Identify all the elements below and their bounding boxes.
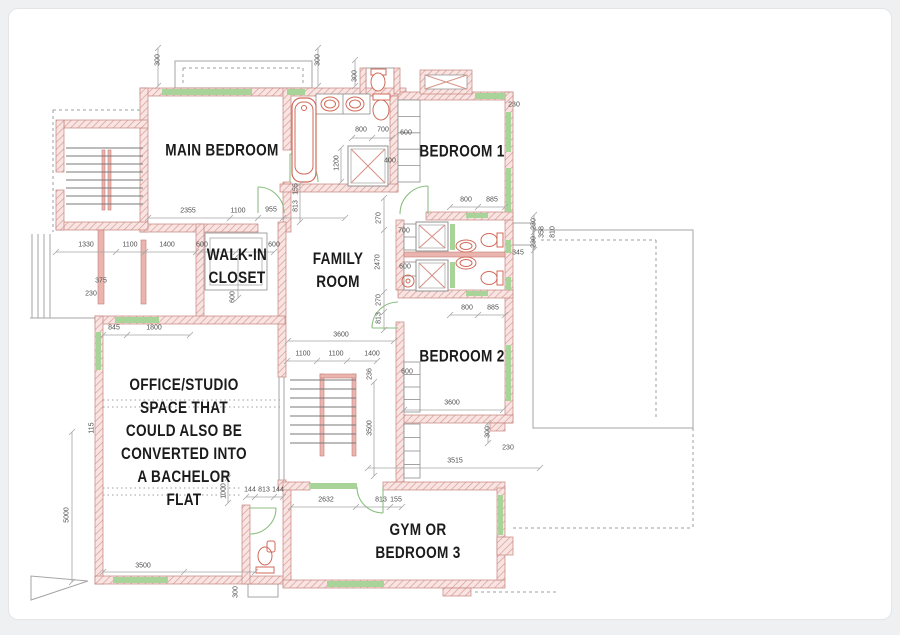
dim-label: 300 xyxy=(485,426,492,438)
dim-label: 144 xyxy=(244,487,256,494)
dim-label: 144 xyxy=(272,487,284,494)
dim-label: 1100 xyxy=(295,351,310,358)
dim-label: 800 xyxy=(460,197,472,204)
window-segment xyxy=(498,495,503,535)
wall-segment xyxy=(283,88,291,150)
dim-label: 3515 xyxy=(447,458,463,465)
dim-label: 700 xyxy=(377,127,389,134)
dim-label: 600 xyxy=(196,242,208,249)
wall-segment xyxy=(398,290,513,298)
wall-segment xyxy=(394,68,400,94)
wall-segment xyxy=(360,68,366,94)
dim-label: 3600 xyxy=(333,332,349,339)
toilet-icon xyxy=(497,233,503,247)
room-label-line: FAMILY xyxy=(313,247,364,270)
dim-label: 230 xyxy=(531,236,538,248)
sink-icon xyxy=(460,243,472,250)
floor-plan: MAIN BEDROOMBEDROOM 1WALK-INCLOSETFAMILY… xyxy=(0,0,900,635)
window-segment xyxy=(506,277,511,290)
dim-label: 230 xyxy=(502,445,514,452)
accent-wall xyxy=(404,252,505,257)
dim-label: 2632 xyxy=(318,497,334,504)
window-segment xyxy=(466,213,488,218)
wall-segment xyxy=(56,190,64,230)
accent-wall xyxy=(98,230,104,304)
room-label-line: MAIN BEDROOM xyxy=(165,139,278,162)
accent-wall xyxy=(141,240,146,304)
dim-label: 800 xyxy=(461,305,473,312)
window-segment xyxy=(115,317,159,323)
balcony-outline xyxy=(175,61,312,88)
dim-label: 3500 xyxy=(135,563,151,570)
dim-label: 155 xyxy=(390,497,402,504)
window-segment xyxy=(450,224,455,250)
room-label-walk-in-closet: WALK-INCLOSET xyxy=(207,243,267,289)
wardrobe-shelf xyxy=(398,100,420,182)
toilet-icon xyxy=(481,272,497,285)
dim-label: 270 xyxy=(376,294,383,306)
dim-label: 600 xyxy=(230,291,237,303)
wall-segment xyxy=(383,482,505,490)
room-label-bedroom-1: BEDROOM 1 xyxy=(419,140,504,163)
wall-segment xyxy=(196,224,204,317)
dim-label: 845 xyxy=(108,325,120,332)
window-segment xyxy=(287,89,305,95)
dim-label: 885 xyxy=(487,305,499,312)
room-label-line: BEDROOM 2 xyxy=(419,345,504,368)
dim-label: 300 xyxy=(155,54,162,66)
room-label-line: SPACE THAT xyxy=(121,396,247,419)
dim-label: 600 xyxy=(399,264,411,271)
wall-segment xyxy=(443,588,471,596)
dim-label: 813 xyxy=(375,497,387,504)
dim-label: 1000 xyxy=(221,483,228,499)
wall-segment xyxy=(283,580,505,588)
dim-label: 300 xyxy=(315,54,322,66)
dim-label: 3600 xyxy=(444,400,460,407)
room-label-line: WALK-IN xyxy=(207,243,267,266)
wall-segment xyxy=(390,96,398,192)
dim-label: 236 xyxy=(367,368,374,380)
door-arc-icon xyxy=(250,508,276,534)
window-segment xyxy=(506,112,511,152)
dim-label: 115 xyxy=(89,422,96,433)
dim-label: 300 xyxy=(352,70,359,82)
wall-segment xyxy=(398,415,513,423)
window-segment xyxy=(310,483,357,489)
window-segment xyxy=(162,89,252,95)
ramp-outline xyxy=(31,576,88,600)
room-label-line: BEDROOM 3 xyxy=(375,541,460,564)
dim-label: 5000 xyxy=(64,507,71,523)
dim-label: 813 xyxy=(258,487,270,494)
dim-label: 700 xyxy=(398,228,410,235)
wall-segment xyxy=(56,222,148,230)
dim-label: 810 xyxy=(550,226,557,238)
dim-label: 375 xyxy=(95,278,107,285)
room-label-line: OFFICE/STUDIO xyxy=(121,373,247,396)
dim-label: 400 xyxy=(384,158,396,165)
room-label-line: GYM OR xyxy=(375,518,460,541)
dim-label: 230 xyxy=(531,218,538,230)
accent-wall xyxy=(320,374,356,378)
dim-label: 1330 xyxy=(78,242,94,249)
room-label-main-bedroom: MAIN BEDROOM xyxy=(165,139,278,162)
wall-segment xyxy=(283,488,291,584)
dim-label: 155 xyxy=(293,183,300,195)
room-label-line: CONVERTED INTO xyxy=(121,442,247,465)
window-segment xyxy=(475,93,505,99)
dim-label: 600 xyxy=(400,130,412,137)
door-arc-icon xyxy=(400,186,428,214)
wall-segment xyxy=(56,120,64,172)
wall-segment xyxy=(64,120,148,128)
room-label-line: CLOSET xyxy=(207,266,267,289)
dim-label: 358 xyxy=(539,226,546,238)
dim-label: 800 xyxy=(355,127,367,134)
step-outline xyxy=(248,584,278,597)
dim-label: 3500 xyxy=(367,420,374,436)
room-label-line: ROOM xyxy=(313,270,364,293)
toilet-icon xyxy=(258,547,272,565)
dim-label: 1800 xyxy=(146,325,162,332)
sink-icon xyxy=(456,240,476,252)
dim-label: 1400 xyxy=(364,351,380,358)
toilet-icon xyxy=(481,234,497,247)
accent-wall xyxy=(320,374,324,456)
wall-segment xyxy=(490,423,505,431)
room-label-office-studio: OFFICE/STUDIOSPACE THATCOULD ALSO BECONV… xyxy=(121,373,247,511)
dim-label: 600 xyxy=(401,369,413,376)
room-label-bedroom-2: BEDROOM 2 xyxy=(419,345,504,368)
window-segment xyxy=(506,345,511,401)
dim-label: 885 xyxy=(486,197,498,204)
dim-label: 345 xyxy=(512,250,524,257)
wall-segment xyxy=(140,88,148,232)
toilet-icon xyxy=(373,94,390,100)
wall-segment xyxy=(497,537,513,555)
accent-wall xyxy=(352,374,356,456)
window-segment xyxy=(450,262,455,288)
toilet-icon xyxy=(373,100,389,120)
wall-segment xyxy=(396,322,404,482)
window-segment xyxy=(506,240,511,253)
room-label-line: COULD ALSO BE xyxy=(121,419,247,442)
dim-label: 2355 xyxy=(180,208,196,215)
sink-icon xyxy=(456,257,476,269)
room-label-line: BEDROOM 1 xyxy=(419,140,504,163)
wall-segment xyxy=(283,482,310,490)
room-label-gym-bedroom-3: GYM ORBEDROOM 3 xyxy=(375,518,460,564)
dim-label: 2470 xyxy=(375,254,382,270)
toilet-icon xyxy=(371,73,385,91)
room-label-line: A BACHELOR xyxy=(121,465,247,488)
sink-icon xyxy=(460,260,472,267)
window-segment xyxy=(327,581,384,587)
dim-label: 600 xyxy=(268,242,280,249)
room-label-line: FLAT xyxy=(121,488,247,511)
room-label-family-room: FAMILYROOM xyxy=(313,247,364,293)
patio-outline xyxy=(533,230,693,428)
dim-label: 1200 xyxy=(334,155,341,171)
window-segment xyxy=(113,577,168,583)
dim-label: 1100 xyxy=(328,351,343,358)
dim-label: 813 xyxy=(376,312,383,324)
dim-label: 955 xyxy=(265,207,277,214)
toilet-icon xyxy=(256,567,274,573)
dim-label: 1100 xyxy=(230,208,245,215)
dim-label: 813 xyxy=(293,200,300,212)
toilet-icon xyxy=(497,271,503,285)
dim-label: 270 xyxy=(376,212,383,224)
dim-label: 1100 xyxy=(122,242,137,249)
dim-label: 230 xyxy=(508,102,520,109)
dim-label: 300 xyxy=(233,586,240,598)
dim-label: 1400 xyxy=(159,242,175,249)
window-segment xyxy=(466,291,488,296)
dim-label: 230 xyxy=(85,291,97,298)
